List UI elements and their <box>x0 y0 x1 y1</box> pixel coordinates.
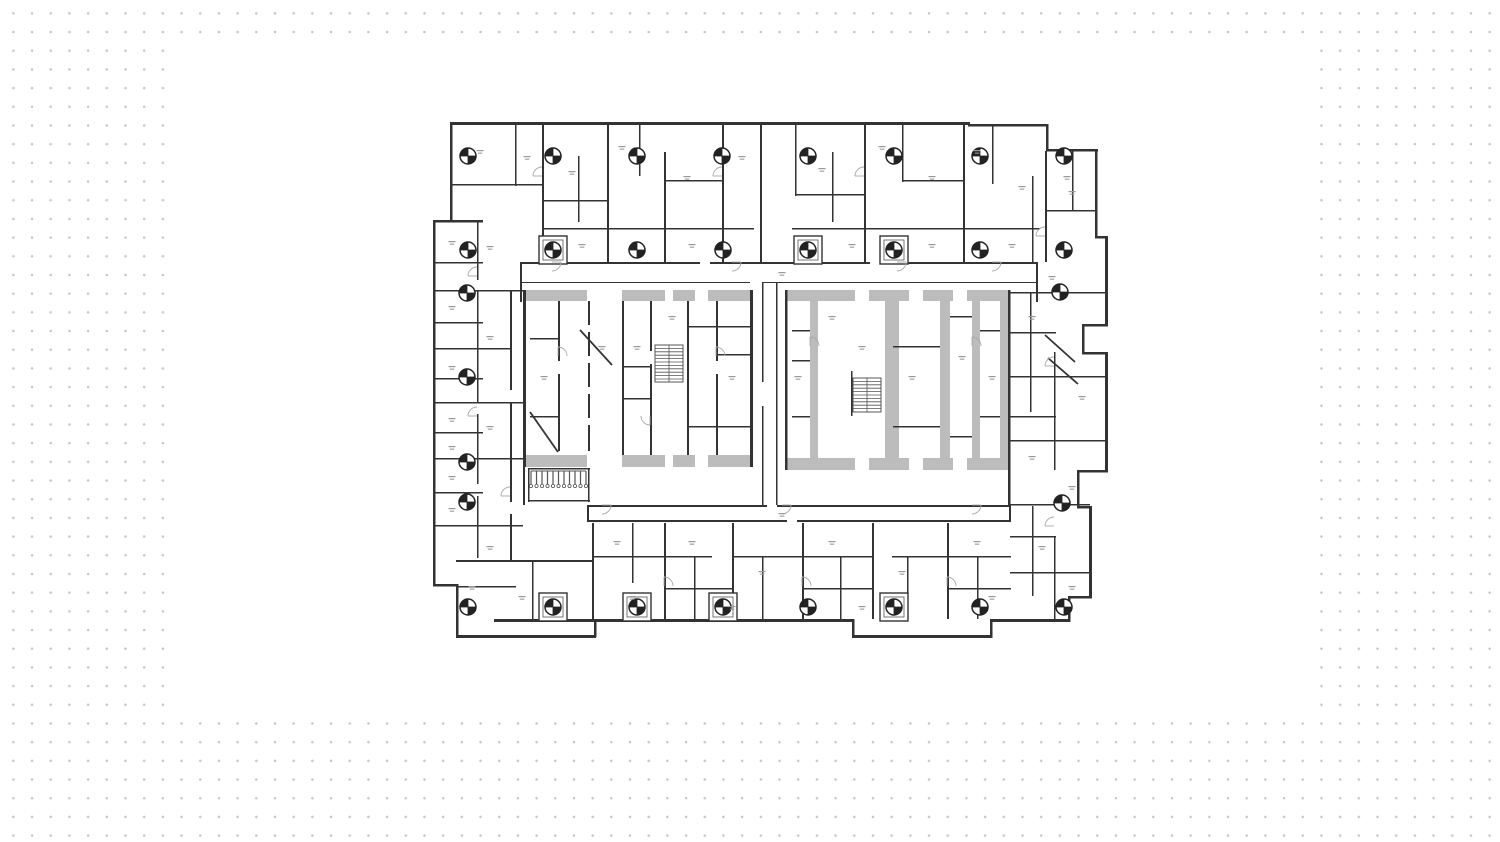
app-screen <box>0 0 1500 842</box>
poche-layer <box>525 290 1008 470</box>
room-labels-layer <box>449 146 1086 610</box>
floor-plan-drawing <box>432 116 1108 640</box>
floor-plan <box>432 116 1108 640</box>
diagonal-walls-layer <box>530 330 1078 452</box>
plumbing-comb-layer <box>529 471 587 488</box>
columns-layer <box>459 148 1072 615</box>
